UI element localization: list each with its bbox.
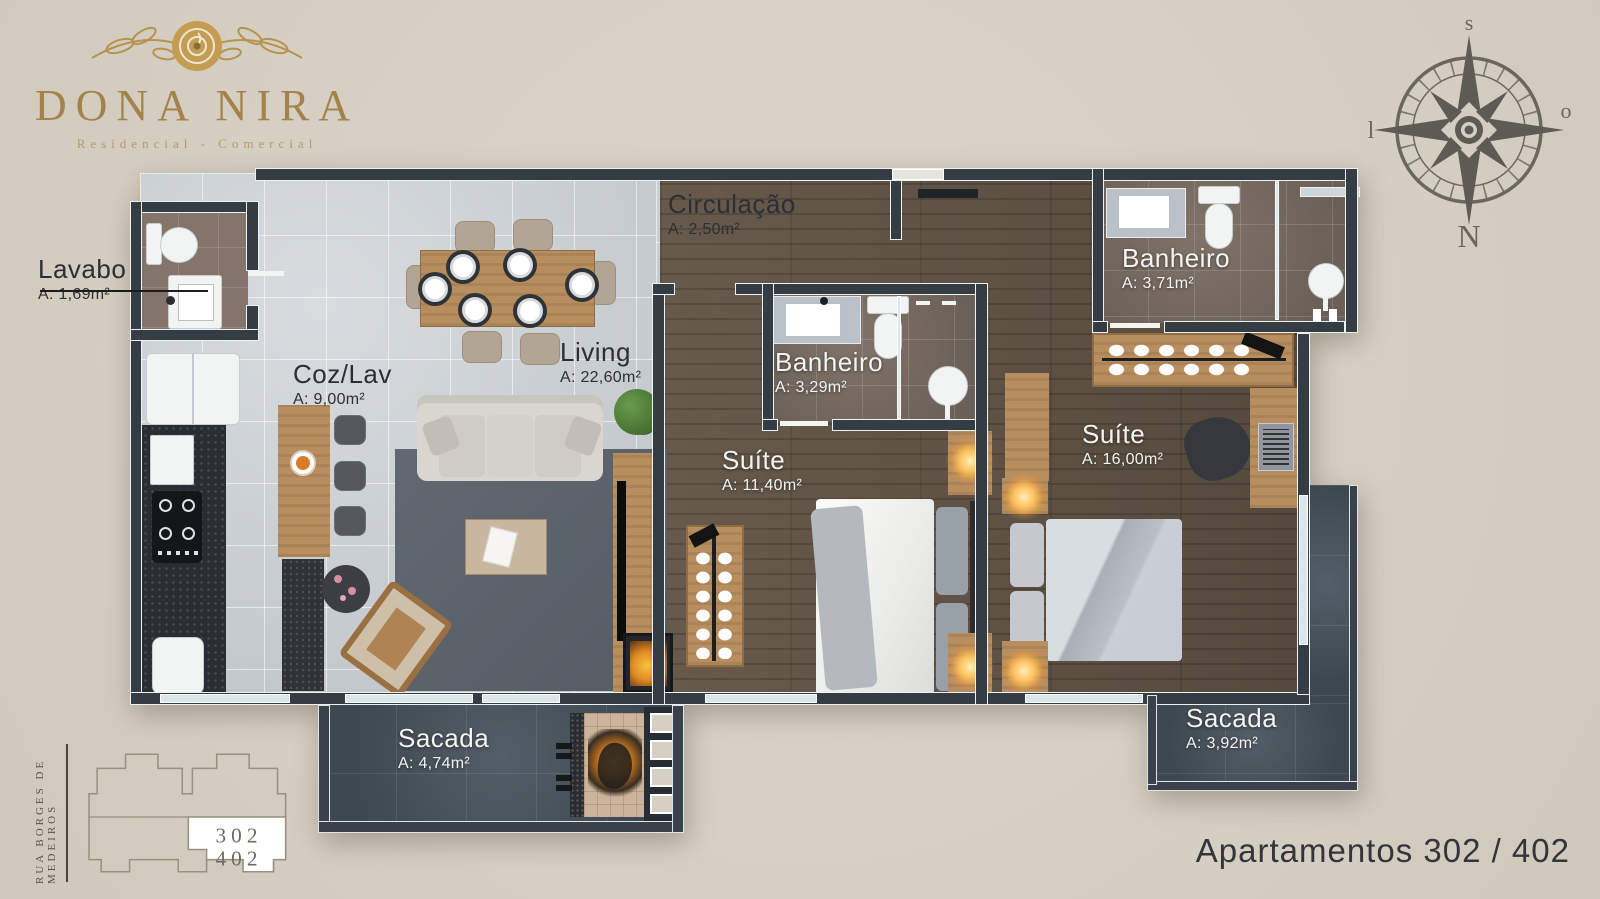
flower-ornament-icon [82, 10, 312, 84]
grill-grate [556, 785, 572, 791]
grill-grate [556, 775, 572, 781]
wall-segment [1345, 168, 1358, 333]
window [705, 694, 817, 703]
bathroom2-toilet-tank [1198, 186, 1240, 204]
bathroom2-shower-glass [1275, 180, 1279, 320]
suite2-bed-duvet [1046, 519, 1182, 661]
accent-round-rug [322, 565, 370, 613]
bathroom1-shower-arm [945, 401, 950, 419]
floor-sacada-suite-vertical [1308, 485, 1349, 703]
wall-segment [1164, 321, 1345, 333]
wall-segment [130, 201, 256, 213]
street-label: RUA BORGES DE MEDEIROS [34, 742, 58, 884]
brand-title: DONA NIRA [12, 80, 382, 131]
bathroom1-shower-valve [916, 301, 930, 305]
entry-threshold [892, 169, 944, 180]
compass-rose-icon: s o l N [1363, 16, 1575, 248]
bathroom1-toilet-tank [867, 296, 909, 314]
wall-segment [762, 419, 778, 431]
parapet [318, 705, 330, 833]
plate [422, 276, 448, 302]
suite2-pillow [1010, 523, 1044, 587]
wall-segment [652, 283, 675, 295]
burner [182, 527, 195, 540]
wall-segment [832, 419, 988, 431]
kitchen-sink [152, 637, 204, 695]
window [160, 694, 290, 703]
sofa-cushion [487, 415, 533, 477]
parapet [318, 821, 684, 833]
wall-segment [1092, 321, 1108, 333]
parapet [672, 705, 684, 833]
room-label-sacada2: Sacada A: 3,92m² [1186, 705, 1277, 753]
cooktop-knobs [158, 551, 198, 555]
fridge-door-split [192, 354, 194, 424]
brand-subtitle: Residencial - Comercial [12, 136, 382, 152]
sliding-door [1299, 495, 1308, 645]
brand-logo: DONA NIRA Residencial - Comercial [12, 8, 382, 158]
tv [617, 481, 626, 641]
lamp-glow [1000, 647, 1048, 695]
wall-segment [890, 180, 902, 240]
laptop-keyboard [1263, 429, 1289, 465]
lavabo-faucet [166, 296, 175, 305]
flower-detail [348, 587, 356, 595]
entry-door-leaf [918, 189, 978, 198]
bathroom1-sink [785, 303, 841, 337]
flower-detail [334, 575, 342, 583]
room-label-suite1: Suíte A: 11,40m² [722, 447, 802, 495]
parapet [1147, 695, 1157, 785]
plate [462, 297, 488, 323]
kitchen-runner-rug [282, 559, 324, 691]
unit-number-402: 402 [215, 847, 262, 871]
grill-grate [556, 743, 572, 749]
flower-detail [340, 595, 346, 601]
plate [507, 252, 533, 278]
wall-segment [1092, 168, 1104, 333]
toiletry-bottle [1313, 309, 1321, 321]
suite2-wardrobe [1005, 373, 1049, 481]
room-label-sacada1: Sacada A: 4,74m² [398, 725, 489, 773]
bathroom2-shower-arm [1323, 295, 1328, 311]
floor-plan: Circulação A: 2,50m² Coz/Lav A: 9,00m² L… [130, 163, 1358, 839]
room-label-banheiro2: Banheiro A: 3,71m² [1122, 245, 1230, 293]
hanging-clothes [1104, 341, 1254, 379]
bathroom2-shower-head [1308, 263, 1344, 299]
wall-segment [975, 283, 988, 705]
bar-stool [334, 461, 366, 491]
parapet [1147, 781, 1358, 791]
dining-chair [455, 221, 495, 253]
kitchen-island [278, 405, 330, 557]
wall-segment [130, 201, 142, 705]
bathroom2-sink [1118, 195, 1170, 229]
burner [159, 527, 172, 540]
sliding-door [482, 694, 560, 703]
window [1025, 694, 1143, 703]
wall-segment [246, 201, 259, 271]
plate [450, 254, 476, 280]
room-label-banheiro1: Banheiro A: 3,29m² [775, 349, 883, 397]
compass-label-top: s [1465, 16, 1474, 35]
room-label-living: Living A: 22,60m² [560, 339, 641, 387]
bar-stool [334, 415, 366, 445]
burner [159, 499, 172, 512]
street-line [66, 744, 68, 882]
wall-segment [762, 283, 774, 431]
compass-label-bottom: N [1457, 218, 1480, 248]
plate [517, 298, 543, 324]
wall-segment [255, 168, 1358, 181]
bathroom1-shower-glass [897, 296, 901, 419]
shoes [692, 549, 736, 659]
door-leaf [248, 271, 284, 276]
lamp-glow [1000, 473, 1048, 521]
sliding-door [345, 694, 473, 703]
lavabo-leader-line [40, 290, 208, 292]
compass-label-left: l [1368, 118, 1375, 144]
door-leaf [1110, 323, 1160, 328]
wall-segment [652, 283, 665, 705]
grill-grate [556, 753, 572, 759]
room-label-circulacao: Circulação A: 2,50m² [668, 191, 796, 239]
bar-stool [334, 506, 366, 536]
compass-label-right: o [1561, 98, 1572, 123]
fruit [296, 456, 310, 470]
toiletry-bottle [1329, 309, 1337, 321]
room-label-suite2: Suíte A: 16,00m² [1082, 421, 1163, 469]
kitchen-cabinet [150, 435, 194, 485]
dining-chair [513, 219, 553, 251]
suite1-pillow [936, 507, 968, 595]
bathroom1-faucet [820, 297, 828, 305]
floorplan-poster: DONA NIRA Residencial - Comercial s o l … [0, 0, 1600, 899]
dining-chair [520, 333, 560, 365]
burner [182, 499, 195, 512]
room-label-lavabo: Lavabo A: 1,69m² [38, 256, 126, 304]
bathroom1-shower-valve [942, 301, 956, 305]
bathroom1-shower-head [928, 366, 968, 406]
plate [569, 272, 595, 298]
room-label-cozlav: Coz/Lav A: 9,00m² [293, 361, 392, 409]
parapet [1349, 485, 1358, 791]
lavabo-toilet-bowl [160, 227, 198, 263]
grill-counter [570, 713, 584, 817]
dining-chair [462, 331, 502, 363]
door-leaf [780, 421, 828, 426]
wall-segment [130, 329, 259, 341]
